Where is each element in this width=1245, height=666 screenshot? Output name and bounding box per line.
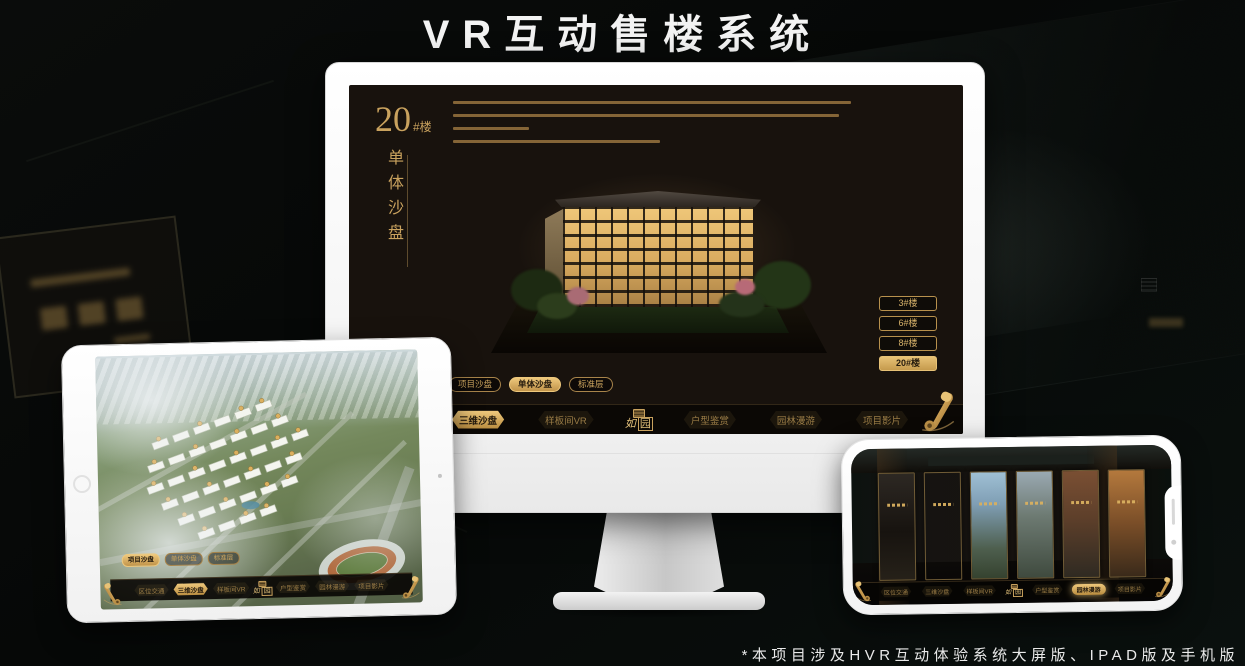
floor-button-3[interactable]: 3#楼 bbox=[879, 296, 937, 311]
building-render bbox=[467, 151, 847, 371]
logo-script-char: 如 bbox=[253, 587, 260, 595]
nav-item-3d-sandbox[interactable]: 三维沙盘 bbox=[920, 585, 954, 596]
floor-button-6[interactable]: 6#楼 bbox=[879, 316, 937, 331]
panel-title-mark bbox=[887, 503, 907, 506]
seal-icon bbox=[259, 580, 267, 586]
tab-standard-floor[interactable]: 标准层 bbox=[208, 551, 240, 565]
nav-item-3d-sandbox[interactable]: 三维沙盘 bbox=[172, 583, 210, 596]
scroll-icon[interactable] bbox=[1154, 574, 1172, 601]
description-line bbox=[453, 101, 851, 104]
logo-boxed-char: 园 bbox=[638, 417, 653, 431]
tree bbox=[719, 291, 765, 317]
monitor-stand-base bbox=[553, 592, 765, 610]
nav-item-project-film[interactable]: 项目影片 bbox=[352, 579, 390, 592]
panel-title-mark bbox=[933, 503, 953, 506]
nav-item-unit-gallery[interactable]: 户型鉴赏 bbox=[274, 580, 312, 593]
nav-item-model-room-vr[interactable]: 样板间VR bbox=[211, 582, 252, 595]
scene-panel[interactable] bbox=[1016, 470, 1055, 579]
logo-boxed-char: 园 bbox=[1013, 589, 1023, 597]
scene-panel[interactable] bbox=[1062, 470, 1101, 579]
nav-item-unit-gallery[interactable]: 户型鉴赏 bbox=[681, 411, 739, 429]
nav-item-location-traffic[interactable]: 区位交通 bbox=[879, 586, 913, 597]
description-line bbox=[453, 127, 529, 130]
tab-standard-floor[interactable]: 标准层 bbox=[569, 377, 613, 392]
description-line bbox=[453, 140, 660, 143]
nav-item-project-film[interactable]: 项目影片 bbox=[853, 411, 911, 429]
monitor-stand-neck bbox=[594, 511, 724, 595]
phone-notch bbox=[1164, 486, 1181, 560]
scene-panel[interactable] bbox=[878, 472, 917, 581]
sandbox-tab-group: 项目沙盘 单体沙盘 标准层 bbox=[449, 377, 613, 392]
nav-item-model-room-vr[interactable]: 样板间VR bbox=[535, 411, 597, 429]
nav-item-garden-roam[interactable]: 园林漫游 bbox=[1071, 583, 1105, 594]
building-headline: 20#楼 bbox=[375, 101, 432, 137]
brand-logo: 如园 bbox=[1005, 584, 1023, 596]
poster-canvas: VR互动售楼系统 20#楼 单体沙盘 bbox=[0, 0, 1245, 666]
phone-camera bbox=[1171, 540, 1176, 545]
background-road-line bbox=[26, 80, 274, 162]
nav-item-location-traffic[interactable]: 区位交通 bbox=[132, 584, 170, 597]
background-grid-icon bbox=[1141, 278, 1157, 292]
description-line bbox=[453, 114, 839, 117]
panel-title-mark bbox=[1025, 502, 1045, 505]
floor-button-8[interactable]: 8#楼 bbox=[879, 336, 937, 351]
brand-logo: 如园 bbox=[253, 580, 273, 594]
headline-divider bbox=[407, 155, 408, 267]
tablet-home-button bbox=[73, 475, 91, 493]
tablet-tab-group: 项目沙盘 单体沙盘 标准层 bbox=[122, 551, 240, 567]
scene-panel[interactable] bbox=[970, 471, 1009, 580]
aerial-masterplan bbox=[95, 349, 423, 609]
tablet-camera bbox=[438, 474, 442, 478]
nav-item-garden-roam[interactable]: 园林漫游 bbox=[313, 579, 351, 592]
nav-item-3d-sandbox[interactable]: 三维沙盘 bbox=[449, 411, 507, 429]
nav-item-model-room-vr[interactable]: 样板间VR bbox=[961, 585, 997, 597]
logo-script-char: 如 bbox=[1005, 590, 1011, 596]
phone-speaker bbox=[1172, 499, 1175, 525]
nav-item-unit-gallery[interactable]: 户型鉴赏 bbox=[1030, 584, 1064, 595]
tab-single-sandbox[interactable]: 单体沙盘 bbox=[509, 377, 561, 392]
floor-button-group: 3#楼 6#楼 8#楼 20#楼 bbox=[879, 291, 937, 376]
tab-project-sandbox[interactable]: 项目沙盘 bbox=[122, 553, 160, 567]
tab-project-sandbox[interactable]: 项目沙盘 bbox=[449, 377, 501, 392]
floor-button-20[interactable]: 20#楼 bbox=[879, 356, 937, 371]
scroll-icon[interactable] bbox=[919, 391, 957, 433]
description-paragraph bbox=[453, 101, 851, 153]
nav-item-project-film[interactable]: 项目影片 bbox=[1113, 583, 1147, 594]
panel-title-mark bbox=[1117, 500, 1137, 503]
brand-logo: 如园 bbox=[625, 409, 653, 430]
panel-title-mark bbox=[1071, 501, 1091, 504]
tablet-screen: 项目沙盘 单体沙盘 标准层 区位交通 三维沙盘 样板间VR 如园 户型鉴赏 园林… bbox=[95, 349, 423, 609]
background-gold-logo bbox=[1149, 318, 1183, 327]
scene-panel-gallery bbox=[878, 469, 1146, 581]
scroll-icon[interactable] bbox=[854, 578, 872, 605]
nav-item-garden-roam[interactable]: 园林漫游 bbox=[767, 411, 825, 429]
scene-panel[interactable] bbox=[1108, 469, 1147, 578]
tab-single-sandbox[interactable]: 单体沙盘 bbox=[165, 552, 203, 566]
building-front-face bbox=[563, 205, 753, 307]
logo-boxed-char: 园 bbox=[262, 586, 273, 595]
phone-device: 区位交通 三维沙盘 样板间VR 如园 户型鉴赏 园林漫游 项目影片 bbox=[841, 435, 1183, 616]
scroll-icon[interactable] bbox=[102, 579, 123, 609]
footnote: *本项目涉及HVR互动体验系统大屏版、IPAD版及手机版 bbox=[742, 644, 1239, 665]
headline-subtitle: 单体沙盘 bbox=[381, 149, 405, 283]
building-number-suffix: #楼 bbox=[413, 120, 432, 134]
blossom-tree bbox=[735, 279, 755, 295]
logo-script-char: 如 bbox=[625, 418, 636, 430]
page-title: VR互动售楼系统 bbox=[0, 2, 1245, 60]
scroll-icon[interactable] bbox=[400, 572, 421, 602]
panel-title-mark bbox=[979, 502, 999, 505]
phone-screen: 区位交通 三维沙盘 样板间VR 如园 户型鉴赏 园林漫游 项目影片 bbox=[851, 445, 1173, 605]
scene-panel[interactable] bbox=[924, 472, 963, 581]
building-number: 20 bbox=[375, 99, 411, 139]
tablet-device: 项目沙盘 单体沙盘 标准层 区位交通 三维沙盘 样板间VR 如园 户型鉴赏 园林… bbox=[61, 337, 457, 624]
blossom-tree bbox=[567, 287, 589, 305]
